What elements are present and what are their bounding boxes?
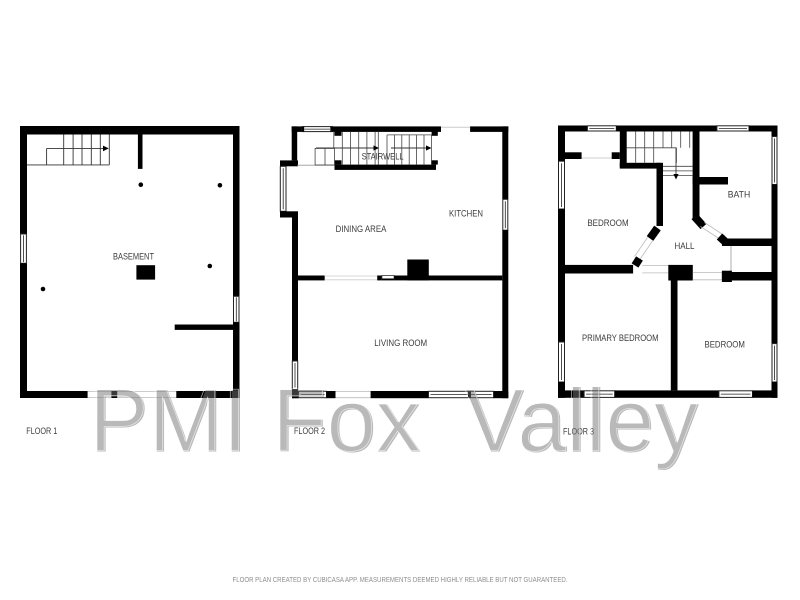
svg-text:KITCHEN: KITCHEN [449,207,483,218]
svg-text:BASEMENT: BASEMENT [113,251,154,262]
svg-text:HALL: HALL [675,240,695,251]
svg-text:STAIRWELL: STAIRWELL [362,150,404,161]
svg-text:PMI Fox: PMI Fox [89,369,420,469]
svg-text:Valley: Valley [465,369,698,469]
svg-text:DINING AREA: DINING AREA [336,223,387,234]
svg-text:BEDROOM: BEDROOM [705,339,746,350]
svg-text:FLOOR PLAN CREATED BY CUBICASA: FLOOR PLAN CREATED BY CUBICASA APP. MEAS… [233,575,568,584]
svg-text:PRIMARY BEDROOM: PRIMARY BEDROOM [582,332,659,343]
svg-text:FLOOR 1: FLOOR 1 [26,426,57,436]
svg-text:BEDROOM: BEDROOM [587,217,628,228]
svg-text:LIVING ROOM: LIVING ROOM [374,337,427,348]
svg-text:BATH: BATH [728,188,751,199]
